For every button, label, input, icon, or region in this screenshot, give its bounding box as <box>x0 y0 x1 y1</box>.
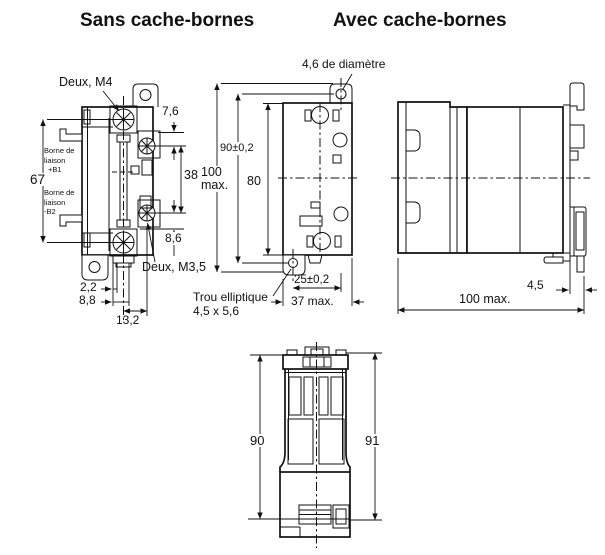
callout-screws-m4: Deux, M4 <box>59 76 113 89</box>
dim-label-90-02: 90±0,2 <box>219 142 255 155</box>
dim-label-4-5: 4,5 <box>527 279 544 292</box>
technical-drawing-page: Sans cache-bornes Avec cache-bornes Deux… <box>0 0 605 555</box>
dim-label-38: 38 <box>184 169 198 182</box>
dim-label-100-max: 100 max. <box>200 166 229 192</box>
callout-screws-m35: Deux, M3,5 <box>142 261 206 274</box>
title-without-covers: Sans cache-bornes <box>80 10 254 32</box>
terminal-link-label-b1: Borne de liaison +B1 <box>44 146 74 175</box>
terminal-link-b2-line2: liaison <box>44 198 74 208</box>
side-view-drawing <box>391 83 590 272</box>
title-with-covers: Avec cache-bornes <box>333 10 507 32</box>
callout-hole-diameter: 4,6 de diamètre <box>302 58 385 71</box>
dim-label-8-8: 8,8 <box>79 294 96 307</box>
dim-label-100-max-side: 100 max. <box>458 293 511 306</box>
callout-elliptical-hole-line1: Trou elliptique <box>193 291 268 305</box>
dim-label-13-2: 13,2 <box>116 314 139 327</box>
terminal-link-b1-line1: Borne de <box>44 146 74 156</box>
mounting-view-drawing <box>278 78 358 283</box>
terminal-link-b2-line1: Borne de <box>44 188 74 198</box>
terminal-link-label-b2: Borne de liaison -B2 <box>44 188 74 217</box>
terminal-link-b1-line2: liaison <box>44 156 74 166</box>
terminal-link-b2-line3: -B2 <box>44 207 74 217</box>
dim-label-25-02: 25±0,2 <box>294 274 329 287</box>
callout-elliptical-hole-line2: 4,5 x 5,6 <box>193 305 268 319</box>
dim-label-91-cover: 91 <box>364 434 380 447</box>
callout-elliptical-hole: Trou elliptique 4,5 x 5,6 <box>193 291 268 318</box>
dim-label-90-cover: 90 <box>249 434 265 447</box>
dim-label-7-6: 7,6 <box>162 105 179 118</box>
dim-label-67: 67 <box>29 173 46 186</box>
dim-label-100-max-line2: max. <box>201 179 228 192</box>
dim-label-80: 80 <box>247 175 261 188</box>
dim-label-8-6: 8,6 <box>164 232 183 245</box>
dim-label-37-max: 37 max. <box>290 295 335 308</box>
terminal-link-b1-line3: +B1 <box>44 165 74 175</box>
cover-view-drawing <box>250 342 382 548</box>
